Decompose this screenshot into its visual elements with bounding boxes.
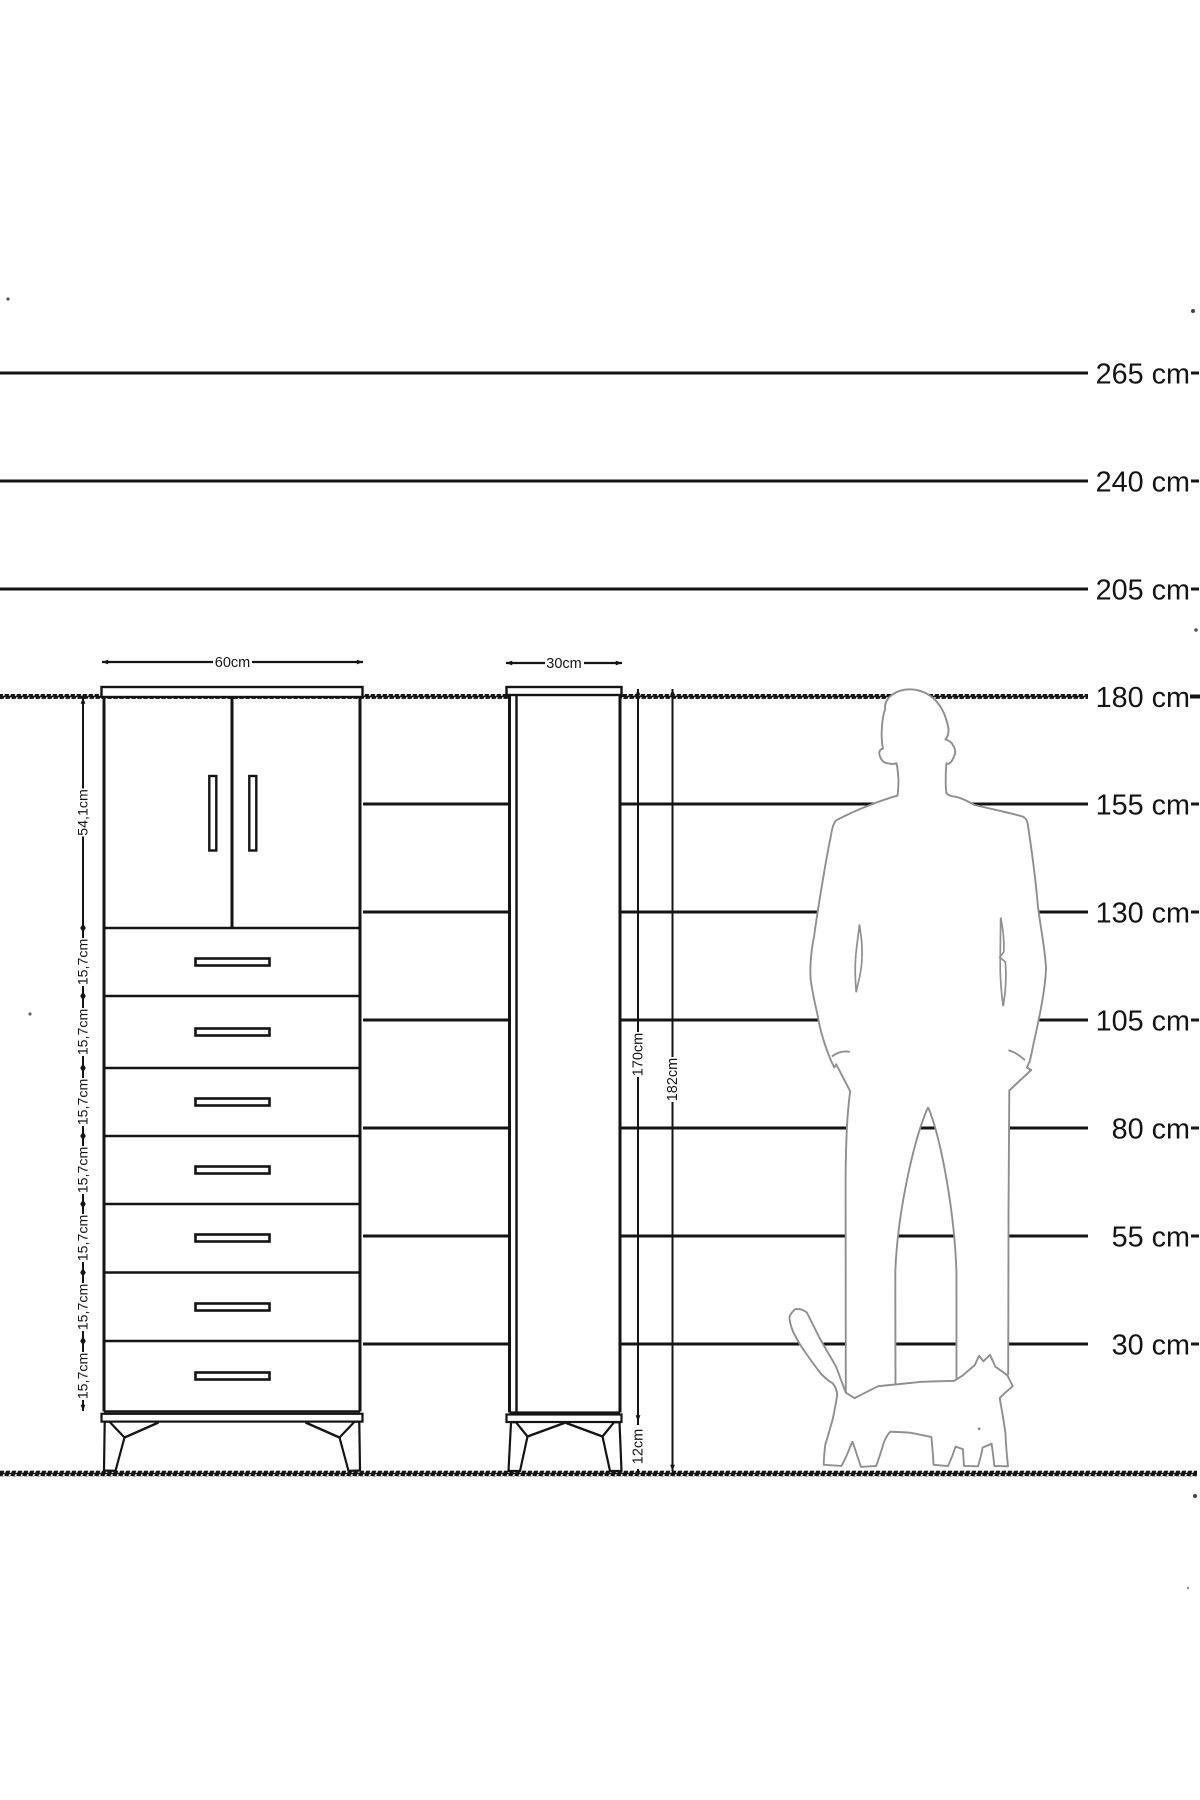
svg-text:105 cm: 105 cm (1096, 1005, 1190, 1037)
svg-text:15,7cm: 15,7cm (76, 1353, 92, 1400)
svg-text:15,7cm: 15,7cm (76, 1215, 92, 1262)
svg-text:15,7cm: 15,7cm (76, 1284, 92, 1331)
svg-text:182cm: 182cm (665, 1058, 681, 1102)
svg-text:30cm: 30cm (546, 656, 581, 672)
svg-text:265 cm: 265 cm (1096, 358, 1190, 390)
svg-text:30 cm: 30 cm (1112, 1329, 1190, 1361)
svg-text:15,7cm: 15,7cm (76, 1079, 92, 1126)
svg-text:80 cm: 80 cm (1112, 1113, 1190, 1145)
svg-text:180 cm: 180 cm (1096, 682, 1190, 714)
svg-text:60cm: 60cm (215, 655, 250, 671)
svg-text:12cm: 12cm (631, 1429, 647, 1464)
svg-text:155 cm: 155 cm (1096, 789, 1190, 821)
svg-text:170cm: 170cm (631, 1033, 647, 1077)
svg-text:54,1cm: 54,1cm (76, 789, 92, 836)
svg-text:15,7cm: 15,7cm (76, 939, 92, 986)
svg-text:240 cm: 240 cm (1096, 466, 1190, 498)
svg-text:15,7cm: 15,7cm (76, 1009, 92, 1056)
svg-text:55 cm: 55 cm (1112, 1221, 1190, 1253)
svg-text:205 cm: 205 cm (1096, 574, 1190, 606)
svg-text:15,7cm: 15,7cm (76, 1147, 92, 1194)
svg-text:130 cm: 130 cm (1096, 897, 1190, 929)
